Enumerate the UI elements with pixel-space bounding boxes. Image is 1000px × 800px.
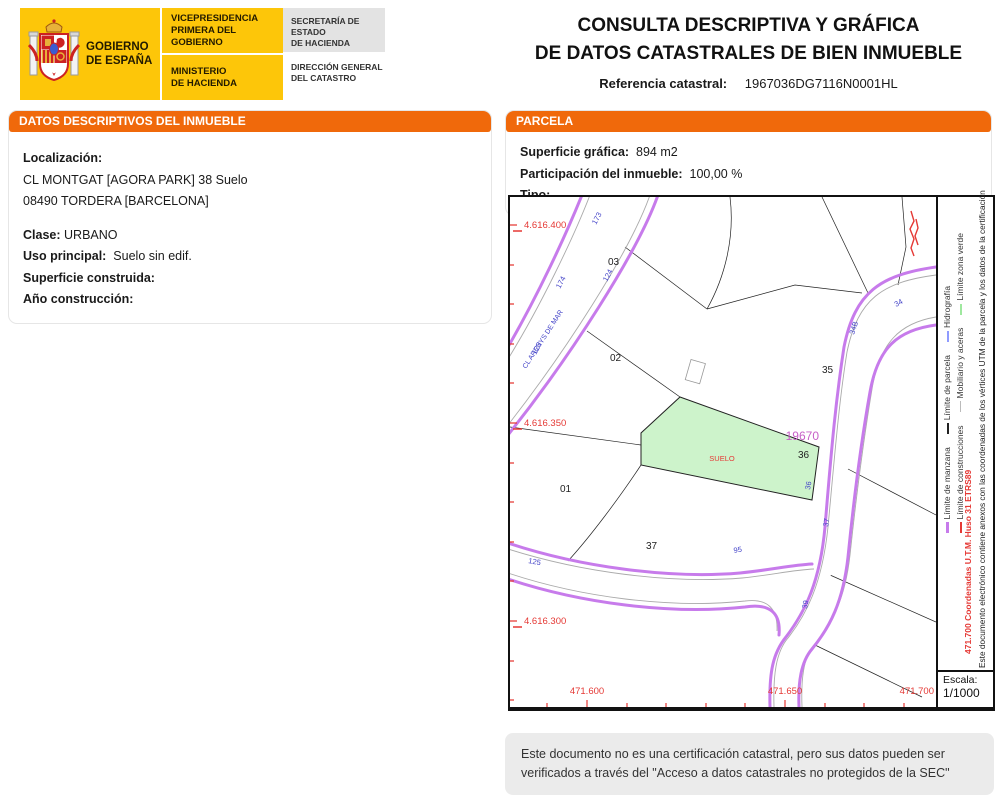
spain-coat-of-arms-icon <box>28 19 80 90</box>
cadastral-document: GOBIERNO DE ESPAÑA VICEPRESIDENCIA PRIME… <box>0 0 1000 800</box>
direccion-general-label: DIRECCIÓN GENERAL DEL CATASTRO <box>283 52 385 100</box>
reference-label: Referencia catastral: <box>599 76 727 91</box>
highlighted-parcel-polygon <box>641 397 819 500</box>
vicepresidencia-label: VICEPRESIDENCIA PRIMERA DEL GOBIERNO <box>162 8 283 53</box>
parcel-number: 35 <box>822 365 834 376</box>
title-line-2: DE DATOS CATASTRALES DE BIEN INMUEBLE <box>505 40 992 68</box>
cadastral-reference: Referencia catastral: 1967036DG7116N0001… <box>505 76 992 91</box>
zona-verde-line-icon <box>960 304 962 315</box>
parcel-number: 37 <box>646 541 658 552</box>
participacion-label: Participación del inmueble: <box>520 167 683 181</box>
disclaimer-box: Este documento no es una certificación c… <box>505 733 994 795</box>
x-coord-label: 471.700 <box>900 686 934 697</box>
parcel-id-label: 19670 <box>786 429 820 443</box>
uso-label: Uso principal: <box>23 249 106 263</box>
logo-left-cell: GOBIERNO DE ESPAÑA <box>20 8 160 100</box>
street-number: 37 <box>821 518 831 528</box>
anio-construccion-label: Año construcción: <box>23 292 133 306</box>
red-construction-marks <box>910 211 918 256</box>
participacion-value: 100,00 % <box>690 167 743 181</box>
hidrografia-line-icon <box>947 331 949 342</box>
margin-coordinates-text: 471.700 Coordenadas U.T.M. Huso 31 ETRS8… <box>963 470 973 654</box>
y-coord-label: 4.616.400 <box>524 220 566 231</box>
map-legend-rotated: Límite de manzana Límite de parcela Hidr… <box>938 197 993 670</box>
ministerio-label: MINISTERIO DE HACIENDA <box>162 55 283 100</box>
parcel-number: 02 <box>610 353 622 364</box>
scale-label: Escala: <box>943 674 993 686</box>
government-logo: GOBIERNO DE ESPAÑA VICEPRESIDENCIA PRIME… <box>20 8 385 100</box>
legend-item: Hidrografía <box>941 286 954 342</box>
parcela-line-icon <box>947 423 949 434</box>
property-section-content: Localización: CL MONTGAT [AGORA PARK] 38… <box>9 132 491 323</box>
scale-value: 1/1000 <box>943 686 993 700</box>
manzana-line-icon <box>946 522 949 533</box>
scale-box: Escala: 1/1000 <box>936 670 993 707</box>
building-outline <box>685 359 705 383</box>
logo-yellow-panel: GOBIERNO DE ESPAÑA VICEPRESIDENCIA PRIME… <box>20 8 283 100</box>
legend-item: Límite de manzana <box>941 447 954 533</box>
parcel-section-header: PARCELA <box>506 111 991 132</box>
clase-label: Clase: <box>23 228 61 242</box>
parcel-number: 36 <box>798 450 810 461</box>
x-coord-label: 471.600 <box>570 686 604 697</box>
street-number: 95 <box>733 545 743 555</box>
legend-item: Límite zona verde <box>954 233 967 315</box>
y-coord-label: 4.616.350 <box>524 418 566 429</box>
gobierno-espana-label: GOBIERNO DE ESPAÑA <box>86 40 152 68</box>
suelo-label: SUELO <box>709 454 735 463</box>
parcel-number: 01 <box>560 484 572 495</box>
parcel-number: 03 <box>608 257 620 268</box>
mobiliario-line-icon <box>960 401 961 412</box>
construcciones-line-icon <box>960 522 962 533</box>
logo-sub-panel: SECRETARÍA DE ESTADO DE HACIENDA DIRECCI… <box>283 8 385 100</box>
logo-right-cell: VICEPRESIDENCIA PRIMERA DEL GOBIERNO MIN… <box>162 8 283 100</box>
uso-value: Suelo sin edif. <box>113 249 192 263</box>
superficie-grafica-label: Superficie gráfica: <box>520 145 629 159</box>
localizacion-label: Localización: <box>23 151 102 165</box>
address-line-2: 08490 TORDERA [BARCELONA] <box>23 191 479 213</box>
property-data-section: DATOS DESCRIPTIVOS DEL INMUEBLE Localiza… <box>8 110 492 324</box>
reference-value: 1967036DG7116N0001HL <box>745 76 898 91</box>
document-title: CONSULTA DESCRIPTIVA Y GRÁFICA DE DATOS … <box>505 12 992 91</box>
secretaria-estado-label: SECRETARÍA DE ESTADO DE HACIENDA <box>283 8 385 52</box>
superficie-grafica-value: 894 m2 <box>636 145 678 159</box>
parcel-map-drawing: 4.616.400 4.616.350 4.616.300 471.600 47… <box>510 197 936 707</box>
street-number: 36 <box>803 481 813 491</box>
y-coord-label: 4.616.300 <box>524 616 566 627</box>
superficie-construida-label: Superficie construida: <box>23 271 155 285</box>
margin-note-text: Este documento electrónico contiene anex… <box>977 190 987 668</box>
x-coord-label: 471.650 <box>768 686 802 697</box>
street-number: 39 <box>800 600 810 610</box>
legend-item: Límite de parcela <box>941 355 954 434</box>
title-line-1: CONSULTA DESCRIPTIVA Y GRÁFICA <box>505 12 992 40</box>
clase-value: URBANO <box>64 228 117 242</box>
cadastral-map: 4.616.400 4.616.350 4.616.300 471.600 47… <box>508 195 995 711</box>
legend-item: Mobiliario y aceras <box>954 328 967 413</box>
property-section-header: DATOS DESCRIPTIVOS DEL INMUEBLE <box>9 111 491 132</box>
map-legend-strip: Límite de manzana Límite de parcela Hidr… <box>936 197 993 674</box>
address-line-1: CL MONTGAT [AGORA PARK] 38 Suelo <box>23 170 479 192</box>
